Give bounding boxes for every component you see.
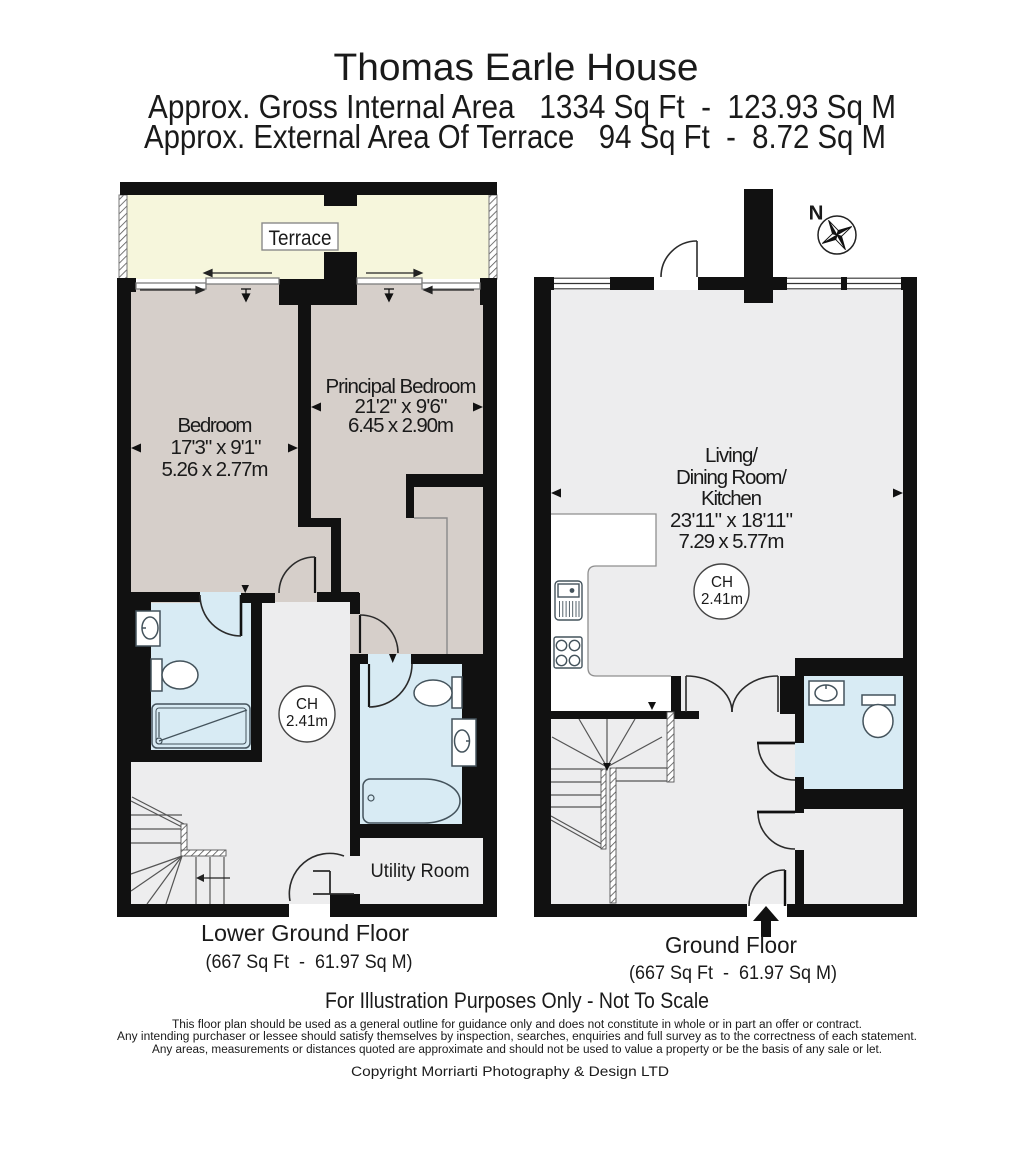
svg-text:Lower Ground Floor: Lower Ground Floor	[201, 920, 409, 946]
svg-text:Bedroom: Bedroom	[178, 414, 253, 437]
svg-text:CH: CH	[296, 696, 318, 713]
svg-text:Utility Room: Utility Room	[371, 860, 470, 882]
svg-text:For Illustration Purposes Only: For Illustration Purposes Only - Not To …	[325, 988, 709, 1013]
svg-text:Living/: Living/	[705, 444, 758, 467]
svg-text:17'3" x 9'1": 17'3" x 9'1"	[171, 436, 262, 459]
svg-text:This floor plan should be used: This floor plan should be used as a gene…	[172, 1019, 862, 1031]
svg-text:Copyright Morriarti Photograph: Copyright Morriarti Photography & Design…	[351, 1064, 669, 1079]
svg-text:N: N	[809, 202, 824, 225]
svg-text:Terrace: Terrace	[269, 226, 332, 250]
svg-text:6.45 x 2.90m: 6.45 x 2.90m	[348, 414, 454, 437]
svg-text:Ground Floor: Ground Floor	[665, 932, 797, 958]
svg-text:2.41m: 2.41m	[286, 713, 328, 730]
svg-text:(667 Sq Ft - 61.97 Sq M): (667 Sq Ft - 61.97 Sq M)	[206, 952, 413, 973]
svg-text:Thomas Earle House: Thomas Earle House	[334, 47, 699, 89]
svg-text:2.41m: 2.41m	[701, 591, 743, 608]
svg-text:Any areas, measurements or dis: Any areas, measurements or distances quo…	[152, 1044, 882, 1056]
svg-text:23'11" x 18'11": 23'11" x 18'11"	[670, 509, 793, 532]
svg-text:Approx. External Area Of Terra: Approx. External Area Of Terrace 94 Sq F…	[144, 118, 886, 155]
svg-text:Any intending purchaser or les: Any intending purchaser or lessee should…	[117, 1031, 917, 1043]
svg-text:Kitchen: Kitchen	[701, 487, 762, 510]
svg-text:(667 Sq Ft - 61.97 Sq M): (667 Sq Ft - 61.97 Sq M)	[629, 963, 837, 984]
svg-text:Dining Room/: Dining Room/	[676, 466, 787, 489]
svg-text:7.29 x 5.77m: 7.29 x 5.77m	[679, 530, 785, 553]
svg-text:5.26 x 2.77m: 5.26 x 2.77m	[162, 458, 269, 481]
svg-text:CH: CH	[711, 574, 733, 591]
